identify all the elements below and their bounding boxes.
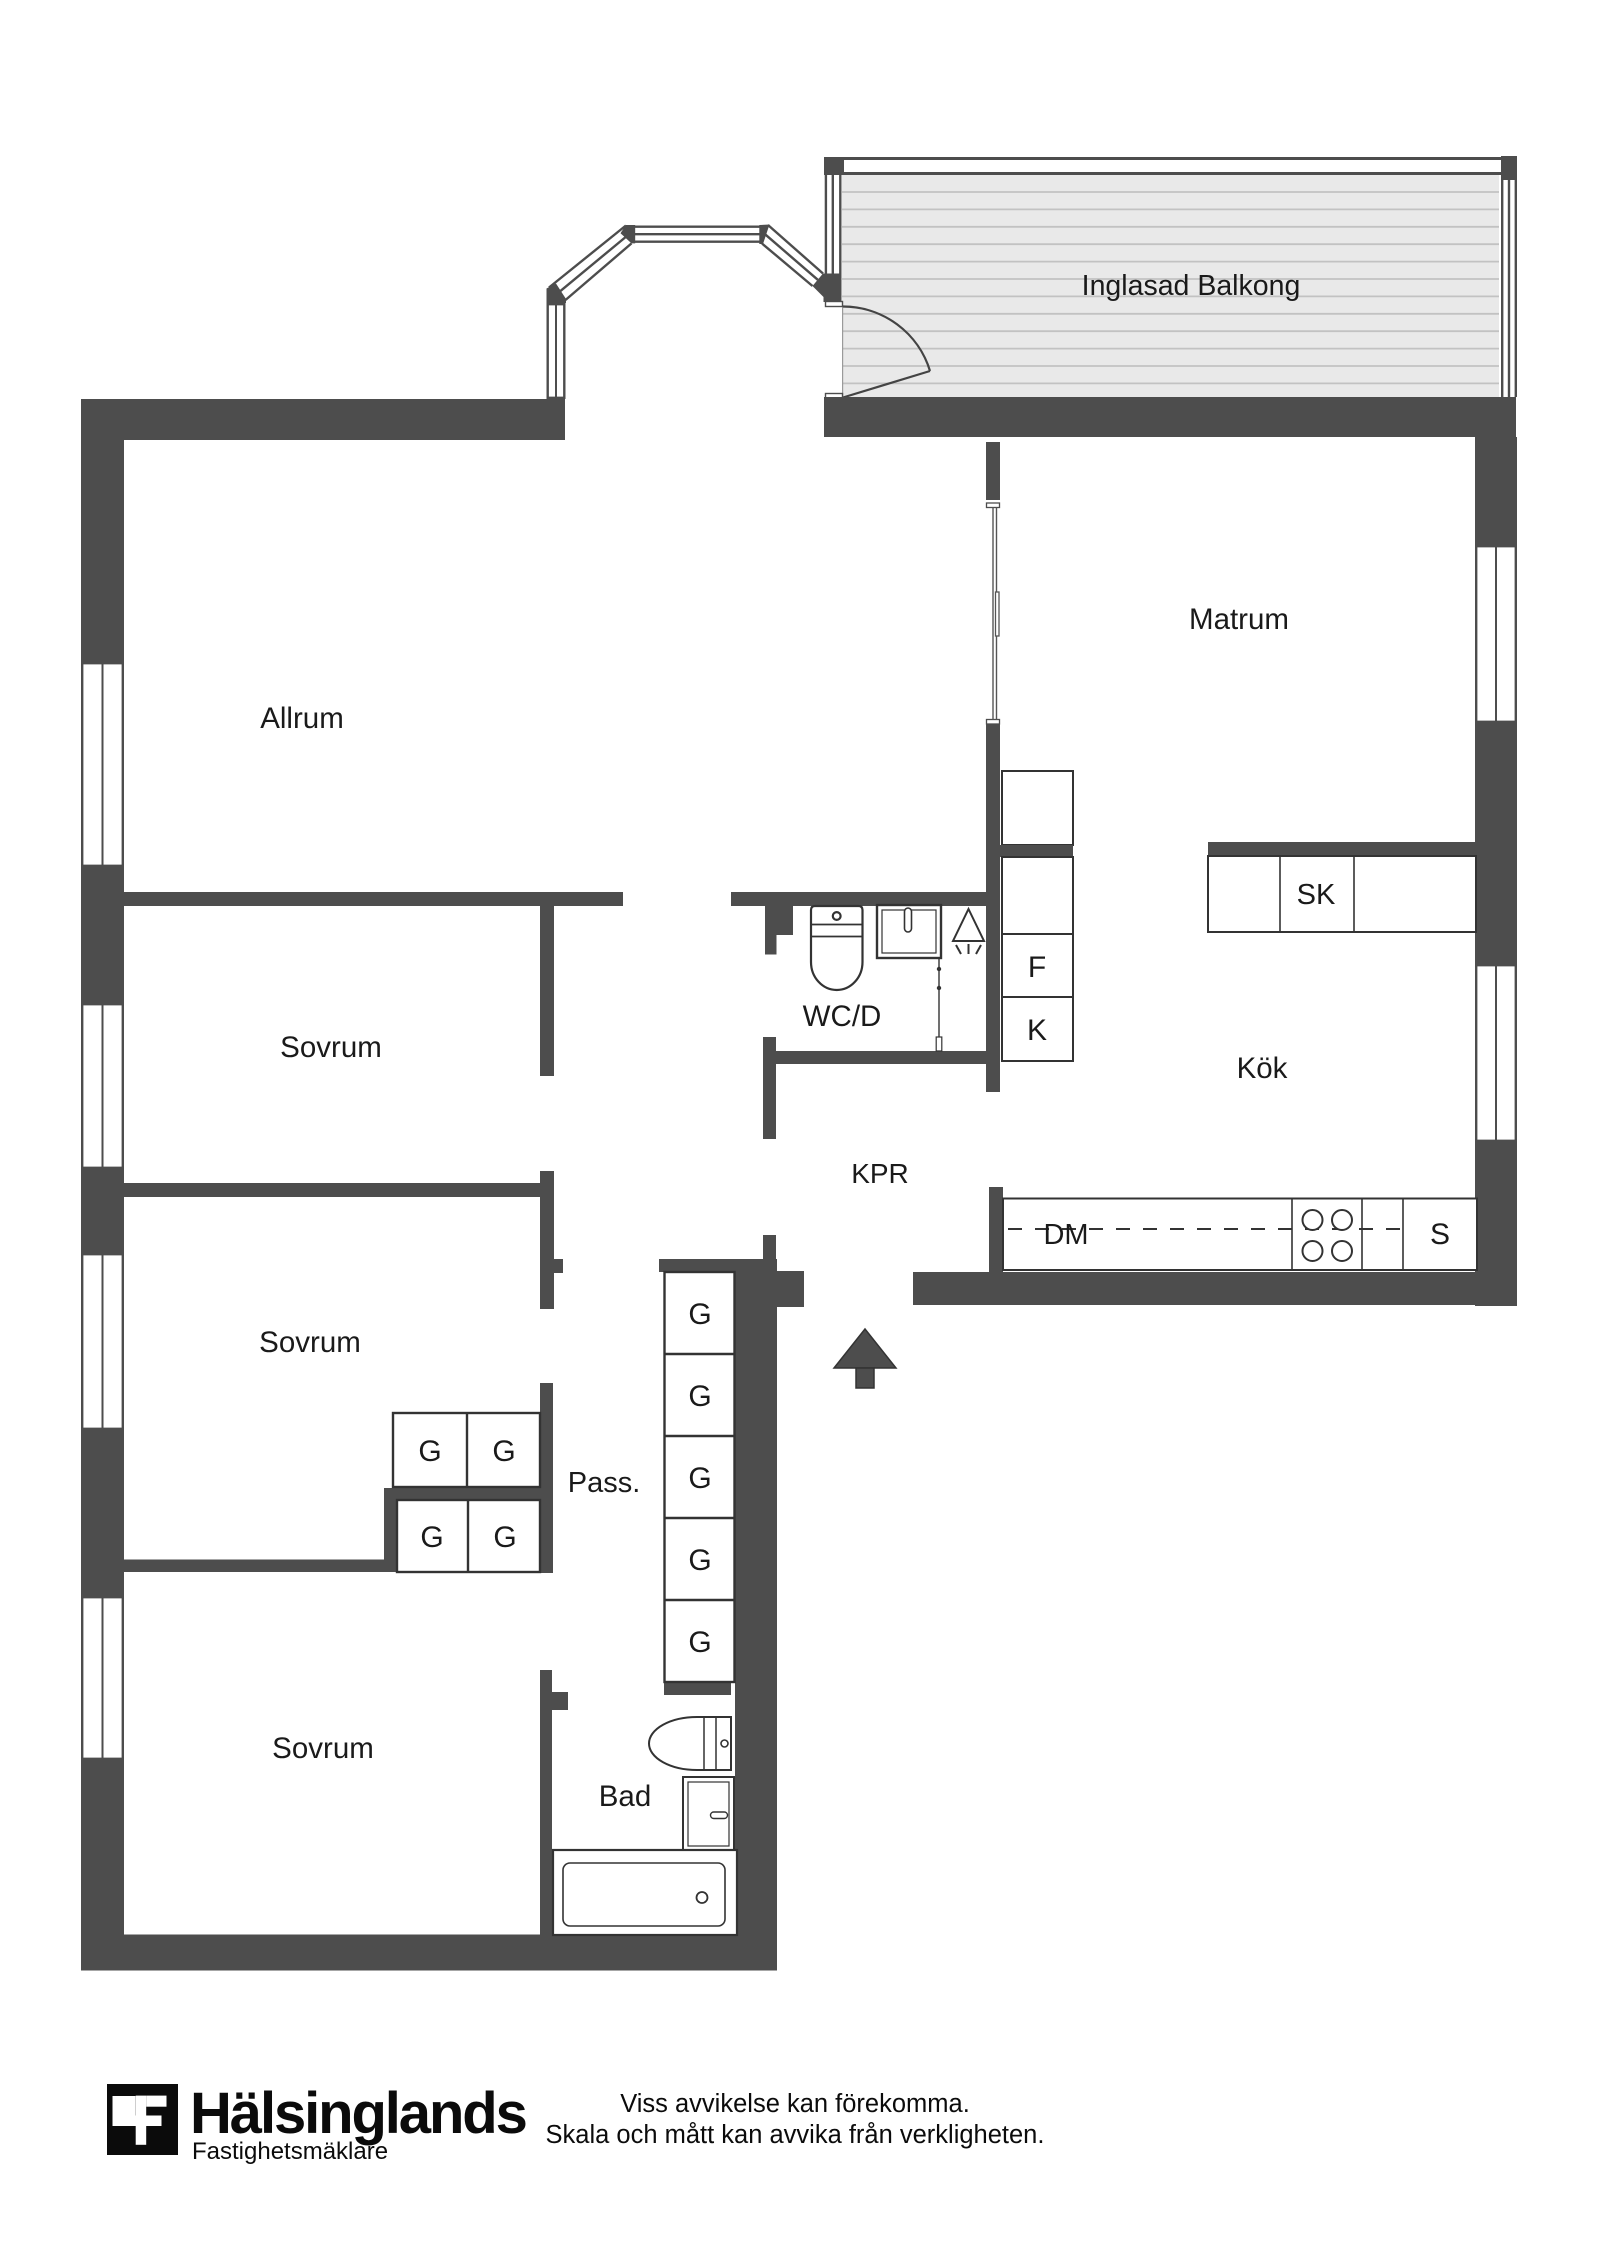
svg-text:Skala och mått kan avvika från: Skala och mått kan avvika från verklighe… bbox=[546, 2121, 1045, 2149]
svg-text:Pass.: Pass. bbox=[568, 1467, 641, 1499]
svg-text:G: G bbox=[688, 1298, 711, 1331]
svg-text:G: G bbox=[688, 1380, 711, 1413]
svg-text:Kök: Kök bbox=[1237, 1052, 1288, 1085]
svg-text:Viss avvikelse kan förekomma.: Viss avvikelse kan förekomma. bbox=[620, 2090, 970, 2118]
svg-text:S: S bbox=[1430, 1218, 1450, 1251]
svg-text:KPR: KPR bbox=[851, 1158, 909, 1189]
svg-text:SK: SK bbox=[1297, 879, 1336, 911]
svg-text:Sovrum: Sovrum bbox=[259, 1326, 361, 1359]
svg-text:F: F bbox=[1028, 951, 1046, 984]
svg-text:K: K bbox=[1027, 1014, 1047, 1047]
svg-text:Matrum: Matrum bbox=[1189, 603, 1289, 636]
svg-text:G: G bbox=[418, 1435, 441, 1468]
svg-text:G: G bbox=[493, 1521, 516, 1554]
svg-text:Inglasad Balkong: Inglasad Balkong bbox=[1082, 270, 1301, 302]
svg-text:Allrum: Allrum bbox=[260, 702, 344, 735]
svg-text:G: G bbox=[688, 1462, 711, 1495]
svg-text:G: G bbox=[420, 1521, 443, 1554]
svg-text:WC/D: WC/D bbox=[803, 1000, 882, 1033]
svg-text:G: G bbox=[492, 1435, 515, 1468]
svg-text:Sovrum: Sovrum bbox=[272, 1732, 374, 1765]
svg-text:G: G bbox=[688, 1544, 711, 1577]
svg-text:Sovrum: Sovrum bbox=[280, 1031, 382, 1064]
svg-text:Hälsinglands: Hälsinglands bbox=[190, 2081, 526, 2146]
svg-text:Bad: Bad bbox=[599, 1780, 652, 1813]
svg-text:Fastighetsmäklare: Fastighetsmäklare bbox=[192, 2138, 388, 2165]
svg-text:DM: DM bbox=[1043, 1219, 1088, 1251]
svg-text:G: G bbox=[688, 1626, 711, 1659]
